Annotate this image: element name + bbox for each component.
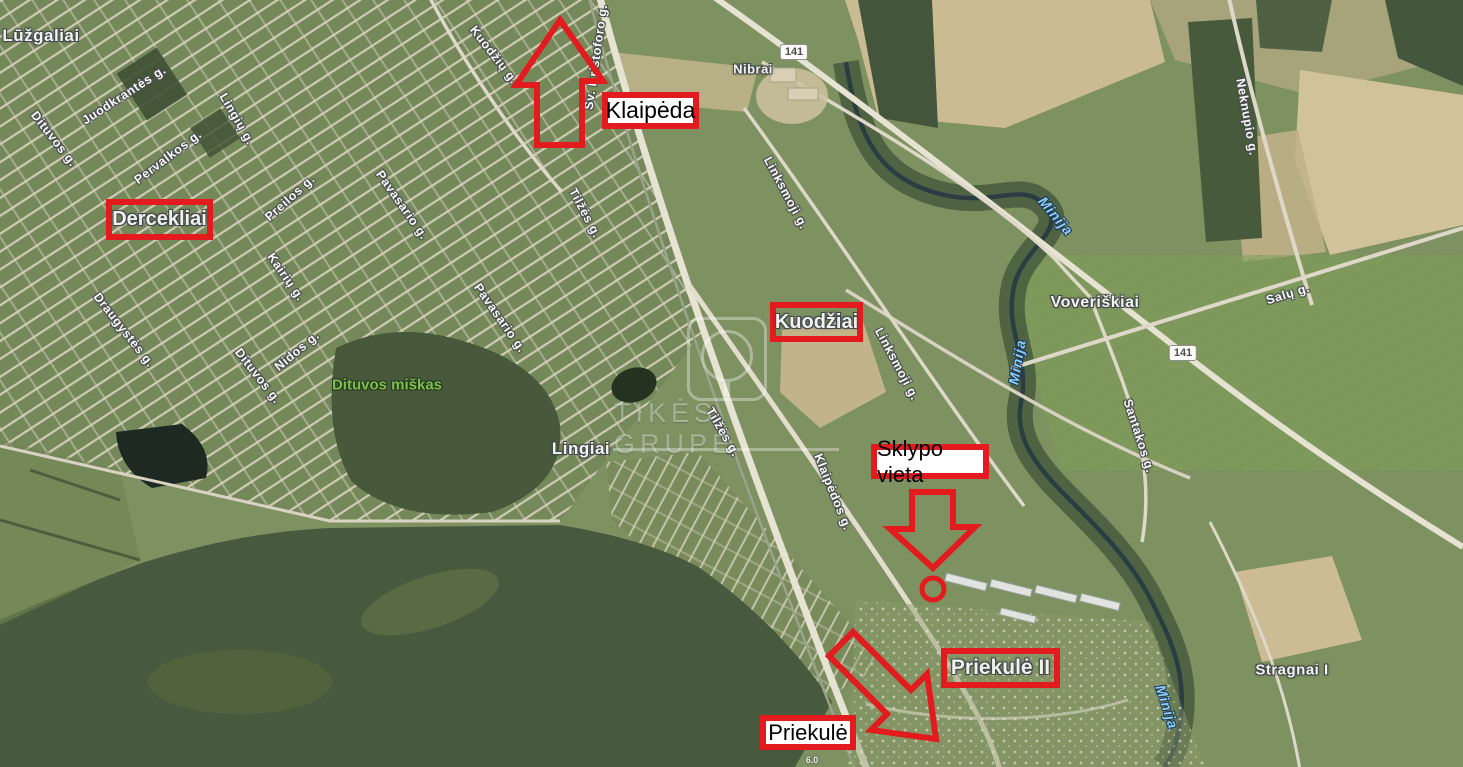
street-label: Tilžės g. — [703, 405, 742, 459]
street-label: Neknupio g. — [1233, 77, 1260, 156]
place-label-luzgaliai: Lūžgaliai — [2, 26, 79, 46]
street-label: Tilžės g. — [566, 186, 604, 241]
road-badge-141: 141 — [780, 44, 808, 60]
watermark-underline — [613, 448, 839, 451]
watermark-logo-stem — [724, 382, 730, 396]
street-label: Pervalkos g. — [131, 127, 204, 187]
river-label-minija: Minija — [1152, 683, 1181, 731]
street-label: Draugystės g. — [91, 290, 158, 370]
annotation-box-sklypo-vieta: Sklypo vieta — [871, 444, 989, 479]
street-label: Linksmoji g. — [872, 325, 922, 402]
street-label: Juodkrantės g. — [79, 63, 168, 128]
street-label: Linksmoji g. — [761, 154, 811, 231]
satellite-map[interactable]: Lūžgaliai Nibrai Voveriškiai Lingiai Str… — [0, 0, 1463, 767]
annotation-box-priekule-2: Priekulė II — [941, 648, 1060, 688]
street-label: Santakos g. — [1120, 397, 1157, 474]
street-label: Dituvos g. — [232, 346, 284, 407]
street-label: Dituvos g. — [28, 109, 80, 170]
annotation-box-klaipeda: Klaipėda — [602, 92, 699, 129]
place-label-nibrai: Nibrai — [733, 62, 773, 77]
street-label: Nidos g. — [272, 328, 322, 374]
annotation-arrows-layer — [0, 0, 1463, 767]
street-label: Pavasario g. — [471, 281, 529, 355]
forest-label-dituvos-miskas: Dituvos miškas — [332, 377, 442, 394]
place-label-voveriskiai: Voveriškiai — [1051, 294, 1140, 312]
km-marker: 6.0 — [806, 755, 819, 765]
street-label: Preilos g. — [262, 172, 318, 224]
satellite-terrain — [0, 0, 1463, 767]
road-badge-141: 141 — [1169, 345, 1197, 361]
place-label-lingiai: Lingiai — [552, 439, 610, 459]
annotation-box-priekule: Priekulė — [760, 715, 856, 750]
arrow-down-to-plot — [890, 492, 975, 568]
river-label-minija: Minija — [1035, 193, 1077, 238]
watermark-text: TIKĖS GRUPĖ — [614, 398, 844, 460]
street-label: Kairių g. — [264, 250, 307, 303]
place-label-stragnai: Stragnai I — [1255, 662, 1328, 679]
street-label: Pavasario g. — [373, 168, 431, 242]
street-label: Kuodžių g. — [467, 23, 521, 87]
arrow-up-to-klaipeda — [516, 20, 603, 145]
watermark-logo-circle — [701, 330, 753, 382]
river-label-minija: Minija — [1005, 338, 1029, 386]
plot-location-circle — [922, 578, 944, 600]
watermark-logo — [687, 317, 767, 401]
annotation-box-dercekliai: Dercekliai — [106, 199, 213, 240]
annotation-box-kuodziai: Kuodžiai — [770, 302, 863, 342]
street-label: Lingių g. — [217, 91, 258, 148]
street-label: Salų g. — [1264, 281, 1311, 308]
street-label: Klaipėdos g. — [811, 452, 855, 533]
